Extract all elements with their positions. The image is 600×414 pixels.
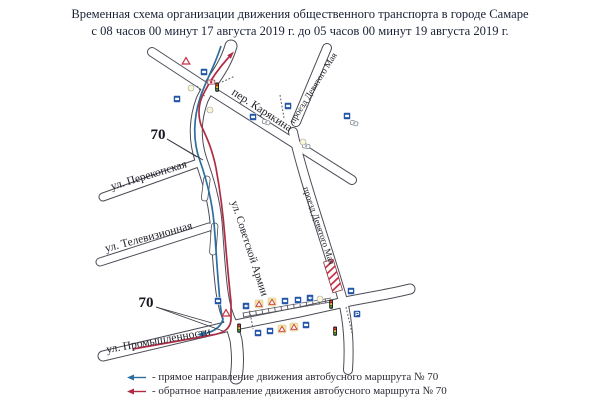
bus-stop-sign-icon [174,96,181,103]
warning-triangle-icon [182,58,190,64]
stop-point-icon [317,296,323,302]
bus-stop-sign-icon [344,113,351,120]
direction-sign-icon [243,303,250,310]
map-area: 70 70 пер. Карякина проезд Девятого Мая … [0,0,600,414]
bus-stop-sign-icon [255,330,262,337]
bus-stop-sign-icon [250,114,257,121]
legend-item-reverse: - обратное направление движения автобусн… [127,384,447,398]
parking-sign-icon [354,311,361,318]
stop-point-icon [207,107,213,113]
temporary-warning-sign-icon [268,298,276,306]
bus-stop-sign-icon [215,298,222,305]
car-icon [350,120,359,126]
street-fills [100,46,410,378]
stop-point-icon [188,85,194,91]
stop-point-icon [300,139,306,145]
map-canvas: 70 70 пер. Карякина проезд Девятого Мая … [0,0,600,414]
street-label-sovetskoy-armii: ул. Советской Армии [228,199,270,298]
bus-stop-sign-icon [303,322,310,329]
street-label-promyshlennosti: ул. Промышленности [105,326,211,356]
traffic-light-icon [237,324,241,333]
route-reverse-arrow-icon [127,387,147,396]
street-label-devyatogo-maya-lower: проезд Девятого Мая [301,185,337,265]
bus-stop-sign-icon [201,69,208,76]
bus-stop-sign-icon [282,298,289,305]
traffic-light-icon [333,327,337,336]
street-casings [100,46,410,378]
route-number-label-2: 70 [139,295,154,311]
car-icon [207,80,215,84]
legend-reverse-label: - обратное направление движения автобусн… [152,385,447,397]
traffic-light-icon [215,83,219,92]
bus-stop-sign-icon [348,288,355,295]
temporary-warning-sign-icon [278,325,286,333]
bus-stop-sign-icon [267,328,274,335]
traffic-light-icon [329,300,333,309]
street-label-devyatogo-maya-upper: проезд Девятого Мая [287,51,339,125]
temporary-warning-sign-icon [290,323,298,331]
legend-item-forward: - прямое направление движения автобусног… [127,370,447,384]
legend-forward-label: - прямое направление движения автобусног… [152,371,438,383]
traffic-scheme-page: Временная схема организации движения общ… [0,0,600,414]
route-forward-arrow-icon [127,373,147,382]
bus-stop-sign-icon [295,297,302,304]
bus-stop-sign-icon [285,103,292,110]
street-label-perekopskaya: ул. Перекопская [109,158,189,193]
route-number-label-1: 70 [151,127,166,143]
direction-sign-icon [307,295,314,302]
temporary-warning-sign-icon [255,300,263,308]
legend: - прямое направление движения автобусног… [127,370,447,398]
